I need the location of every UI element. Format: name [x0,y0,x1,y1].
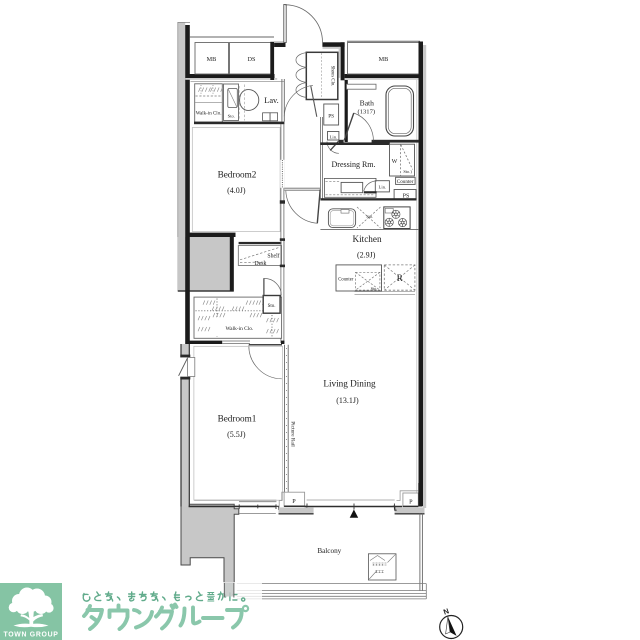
svg-text:(13.1J): (13.1J) [336,396,359,405]
svg-text:Sto.: Sto. [228,114,235,119]
svg-text:P: P [409,498,413,505]
svg-text:Sto.: Sto. [366,214,373,219]
svg-text:Counter: Counter [397,179,414,185]
svg-text:PS: PS [328,114,334,120]
svg-text:Lin.: Lin. [379,185,387,190]
svg-text:Counter: Counter [338,278,354,283]
svg-text:Lav.: Lav. [264,96,279,105]
svg-text:Lin.: Lin. [330,134,338,139]
svg-text:(1317): (1317) [358,109,376,116]
svg-text:TOWN GROUP: TOWN GROUP [3,632,58,639]
svg-text:W: W [392,159,398,165]
svg-text:Bedroom2: Bedroom2 [218,170,257,180]
svg-text:Desk: Desk [255,261,267,267]
svg-text:Sto.: Sto. [268,304,276,309]
svg-text:MB: MB [379,56,389,63]
svg-text:Balcony: Balcony [317,547,341,555]
svg-text:Sto.: Sto. [371,286,378,291]
svg-text:Shelf: Shelf [267,253,279,260]
svg-text:DS: DS [248,56,256,63]
svg-text:Kitchen: Kitchen [352,234,381,244]
svg-text:Dressing Rm.: Dressing Rm. [332,160,376,169]
svg-text:(5.5J): (5.5J) [227,430,246,439]
svg-text:Walk-in Clo.: Walk-in Clo. [196,112,222,117]
svg-text:Sto.): Sto.) [403,169,412,174]
svg-text:MB: MB [207,56,217,63]
svg-text:Bedroom1: Bedroom1 [218,414,257,424]
svg-text:P: P [292,498,296,505]
svg-text:Living Dining: Living Dining [323,379,376,389]
svg-text:(2.9J): (2.9J) [357,251,376,260]
svg-text:Walk-in Clo.: Walk-in Clo. [226,326,254,332]
svg-text:Picture Rail: Picture Rail [290,421,296,447]
svg-text:Bath: Bath [360,99,375,108]
svg-text:Shoes Clo.: Shoes Clo. [330,66,335,87]
svg-text:(4.0J): (4.0J) [227,186,246,195]
svg-text:R: R [397,273,403,283]
